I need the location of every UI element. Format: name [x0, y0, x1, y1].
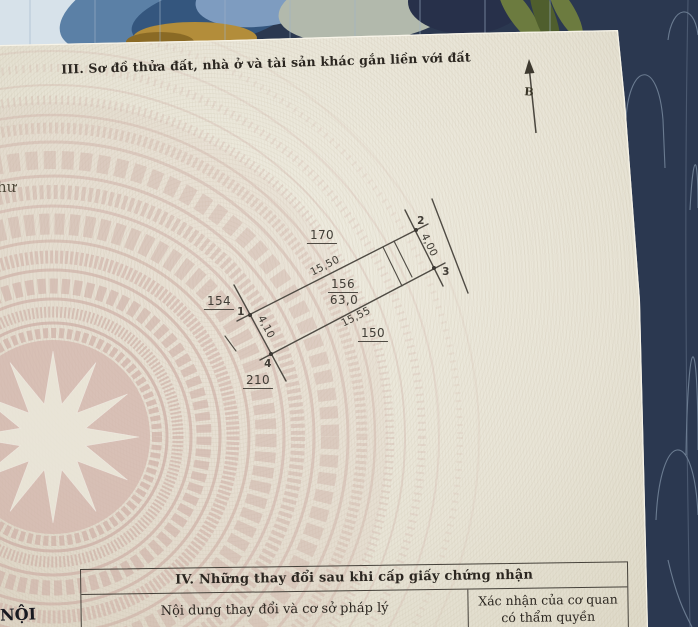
- parcel-area: 63,0: [330, 293, 358, 307]
- corner-dot-4: [269, 352, 273, 356]
- stray-text-bottom-left: NỘI: [0, 604, 36, 624]
- north-label: B: [524, 85, 534, 99]
- corner-label-3: 3: [442, 266, 450, 278]
- road-line: [432, 199, 468, 293]
- adjacent-parcel-number: 210: [243, 373, 273, 389]
- cross-tick: [394, 241, 412, 277]
- photo-of-land-certificate: III. Sơ đồ thửa đất, nhà ở và tài sản kh…: [0, 0, 698, 627]
- corner-dot-2: [414, 228, 418, 232]
- table-header-row: Nội dung thay đổi và cơ sở pháp lý Xác n…: [81, 587, 628, 627]
- column-header-authority-line2: có thẩm quyền: [469, 607, 628, 626]
- certificate-page: III. Sơ đồ thửa đất, nhà ở và tài sản kh…: [0, 0, 698, 627]
- corner-dot-3: [432, 266, 436, 270]
- column-header-authority-line1: Xác nhận của cơ quan: [468, 590, 627, 609]
- neighbor-boundary-segment: [225, 336, 236, 351]
- adjacent-parcel-number: 150: [358, 326, 388, 342]
- stray-text-left-edge: hư: [0, 178, 16, 196]
- cross-tick: [383, 247, 402, 286]
- corner-label-4: 4: [264, 358, 272, 370]
- adjacent-parcel-number: 170: [307, 228, 337, 244]
- column-header-changes: Nội dung thay đổi và cơ sở pháp lý: [81, 590, 469, 627]
- adjacent-parcel-number: 154: [204, 294, 234, 310]
- section-iv-table: IV. Những thay đổi sau khi cấp giấy chứn…: [80, 561, 629, 627]
- column-header-authority: Xác nhận của cơ quan có thẩm quyền: [468, 587, 628, 627]
- corner-dot-1: [248, 313, 252, 317]
- north-arrow-shaft: [529, 66, 536, 133]
- parcel-number: 156: [328, 277, 358, 293]
- north-arrow-head: [525, 59, 535, 74]
- corner-label-2: 2: [417, 215, 425, 227]
- corner-label-1: 1: [237, 306, 245, 318]
